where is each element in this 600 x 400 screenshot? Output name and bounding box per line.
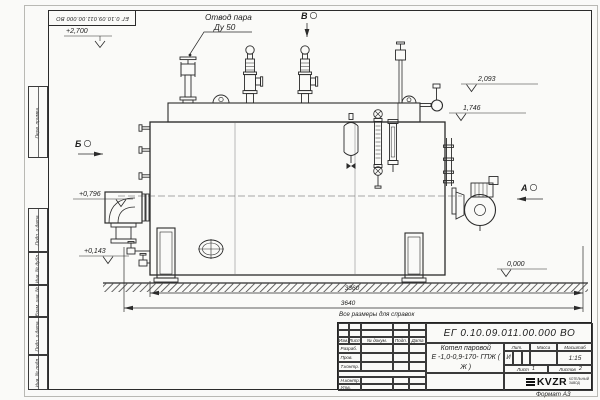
tb-header-data: Дата (409, 337, 426, 344)
front-head-nozzles (139, 125, 150, 179)
tb-empty-cell (338, 323, 349, 330)
elevation-upper: 2,093 (477, 76, 496, 83)
tb-empty-cell (361, 344, 393, 353)
tb-logo-cell: KVZR КОТЕЛЬНЫЙ ЗАВОД (504, 373, 593, 391)
view-marker-b (78, 140, 103, 156)
top-platform (168, 95, 420, 122)
blowdown-valves (127, 242, 150, 267)
tb-empty-cell (409, 330, 426, 337)
water-level-gauge-2 (388, 120, 398, 173)
tb-empty-cell (409, 362, 426, 371)
steam-outlet-label-line2: Ду 50 (213, 23, 236, 32)
boiler-shell (118, 122, 462, 275)
tb-sheet-cell: Лист 1 (504, 365, 548, 373)
tb-empty-cell (361, 384, 393, 391)
tb-empty-cell (361, 362, 393, 371)
tb-row-developed: Разраб. (338, 344, 361, 353)
tb-empty-cell (409, 323, 426, 330)
pressure-gauge-siphon (420, 84, 443, 111)
tb-row-approved: Утв. (338, 384, 361, 391)
tb-empty-cell (409, 344, 426, 353)
elevation-low: +0,143 (84, 248, 106, 255)
tb-empty-cell (393, 330, 409, 337)
tb-empty-cell (361, 330, 393, 337)
elevation-flue: 1,746 (463, 105, 481, 112)
tb-empty-cell (393, 323, 409, 330)
elevation-ground: 0,000 (507, 261, 525, 268)
view-letter-b: Б (75, 139, 82, 149)
tb-empty-cell (409, 377, 426, 384)
tb-lit-value: И (504, 351, 513, 365)
dimension-inner-length: 3360 (345, 285, 360, 292)
steam-outlet-valve (180, 57, 196, 103)
tb-header-doc: № докум. (361, 337, 393, 344)
tb-empty-cell (393, 362, 409, 371)
water-level-gauge-1 (374, 110, 383, 189)
tb-scale-header: Масштаб (557, 343, 593, 351)
tb-empty-cell (522, 351, 530, 365)
tb-product-name: Котел паровой Е -1,0-0,9-170- ГПЖ ( Ж ) (426, 343, 504, 373)
tb-empty-cell (338, 330, 349, 337)
safety-valve (243, 46, 263, 103)
tb-empty-cell (513, 351, 522, 365)
burner-assembly (452, 177, 498, 232)
tb-empty-cell (361, 353, 393, 362)
elevation-top: +2,700 (66, 28, 88, 35)
manhole (198, 239, 224, 259)
elevation-mid: +0,796 (79, 191, 101, 198)
title-block: Изм. Лист № докум. Подп. Дата Разраб. Пр… (337, 322, 592, 390)
kvzr-logo-text: KVZR (537, 376, 567, 388)
tb-empty-cell (349, 330, 361, 337)
tb-sheets-cell: Листов 2 (548, 365, 593, 373)
tb-empty-cell (349, 323, 361, 330)
tb-sheet-label: Лист (517, 367, 529, 372)
tb-mass-header: Масса (530, 343, 557, 351)
kvzr-logo-sub-line2: ЗАВОД (569, 382, 589, 386)
sampling-pipe (396, 42, 406, 103)
safety-valve-2 (298, 46, 318, 103)
tb-sheet-number: 1 (532, 366, 535, 372)
tb-sheets-total: 2 (579, 366, 582, 372)
kvzr-logo-subtext: КОТЕЛЬНЫЙ ЗАВОД (569, 378, 589, 385)
tb-row-checked: Пров. (338, 353, 361, 362)
tb-empty-cell (409, 384, 426, 391)
tb-row-tcontrol: Т.контр. (338, 362, 361, 371)
tb-header-izm: Изм. (338, 337, 349, 344)
drawing-sheet: { "sheet": { "stamp_rotated": "ЕГ 0.10.0… (0, 0, 600, 400)
tb-scale-value: 1:15 (557, 351, 593, 365)
air-duct-elbow (105, 192, 149, 243)
tb-empty-cell (361, 377, 393, 384)
tb-empty-cell (393, 344, 409, 353)
tb-empty-cell (409, 353, 426, 362)
tb-empty-cell (361, 323, 393, 330)
view-letter-a: А (520, 183, 528, 193)
steam-outlet-label-line1: Отвод пара (205, 13, 252, 22)
steam-outlet-leader (189, 32, 252, 56)
kvzr-logo-icon (526, 378, 535, 387)
dimension-overall-length: 3640 (341, 300, 356, 307)
tb-product-line1: Котел паровой (441, 344, 491, 353)
tb-header-podp: Подп. (393, 337, 409, 344)
format-label: Формат А3 (536, 391, 570, 398)
tb-lit-header: Лит. (504, 343, 530, 351)
reference-note: Все размеры для справок (339, 311, 469, 318)
tb-empty-cell (393, 377, 409, 384)
tb-empty-cell (393, 384, 409, 391)
tb-header-list: Лист (349, 337, 361, 344)
view-letter-v: В (301, 11, 308, 21)
tb-doc-number: ЕГ 0.10.09.011.00.000 ВО (426, 323, 593, 343)
tb-sheets-label: Листов (559, 367, 576, 372)
tb-empty-cell (426, 373, 504, 391)
support-legs (154, 228, 426, 282)
tb-empty-cell (393, 353, 409, 362)
tb-product-line2: Е -1,0-0,9-170- ГПЖ ( Ж ) (429, 353, 504, 372)
tb-mass-value (530, 351, 557, 365)
tb-row-ncontrol: Н.контр. (338, 377, 361, 384)
